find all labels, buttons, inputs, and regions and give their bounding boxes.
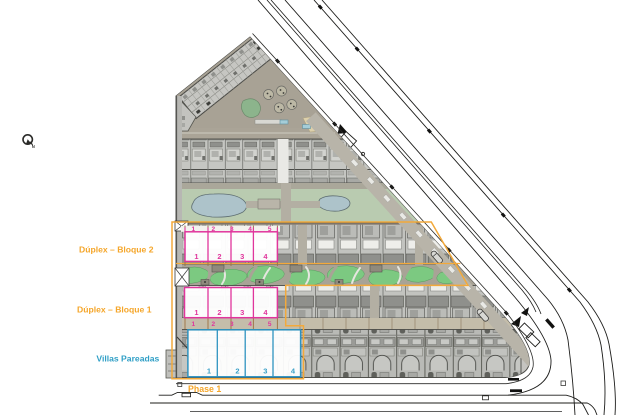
svg-text:4: 4 xyxy=(248,226,252,233)
svg-text:2: 2 xyxy=(217,252,221,261)
svg-text:Dúplex – Bloque 1: Dúplex – Bloque 1 xyxy=(77,304,152,314)
svg-text:3: 3 xyxy=(263,367,267,376)
svg-text:3: 3 xyxy=(230,226,234,233)
svg-text:2: 2 xyxy=(212,226,216,233)
svg-text:1: 1 xyxy=(192,226,196,233)
svg-text:5: 5 xyxy=(268,226,272,233)
svg-text:2: 2 xyxy=(217,308,221,317)
svg-text:5: 5 xyxy=(268,321,272,328)
svg-text:1: 1 xyxy=(192,321,196,328)
svg-text:3: 3 xyxy=(230,321,234,328)
svg-text:N: N xyxy=(32,144,35,149)
svg-text:Dúplex – Bloque 2: Dúplex – Bloque 2 xyxy=(79,244,154,254)
svg-text:Phase 1: Phase 1 xyxy=(188,384,221,394)
svg-text:1: 1 xyxy=(194,252,198,261)
svg-text:2: 2 xyxy=(212,321,216,328)
svg-text:1: 1 xyxy=(194,308,198,317)
svg-text:4: 4 xyxy=(248,321,252,328)
svg-text:1: 1 xyxy=(207,367,211,376)
svg-text:3: 3 xyxy=(240,252,244,261)
svg-text:Villas Pareadas: Villas Pareadas xyxy=(96,353,159,363)
svg-text:2: 2 xyxy=(235,367,239,376)
svg-text:3: 3 xyxy=(240,308,244,317)
